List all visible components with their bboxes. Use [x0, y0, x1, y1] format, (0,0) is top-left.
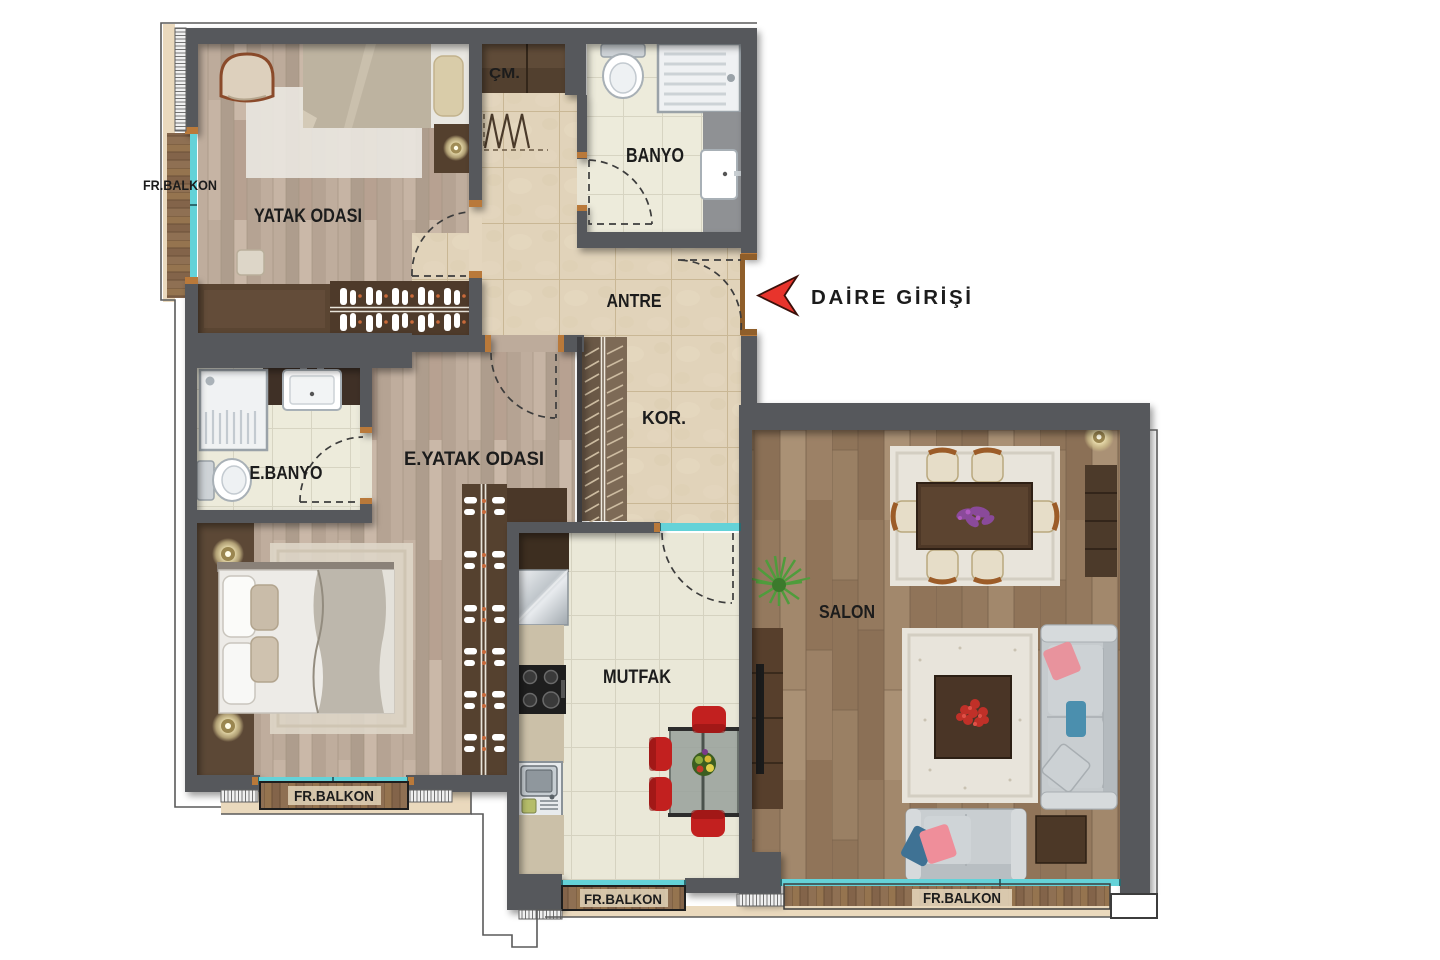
svg-text:FR.BALKON: FR.BALKON: [923, 890, 1001, 907]
svg-text:DAİRE GİRİŞİ: DAİRE GİRİŞİ: [811, 286, 973, 309]
svg-text:FR.BALKON: FR.BALKON: [294, 788, 374, 805]
svg-text:E.BANYO: E.BANYO: [250, 463, 323, 483]
svg-text:SALON: SALON: [819, 602, 875, 622]
svg-text:MUTFAK: MUTFAK: [603, 667, 671, 688]
svg-text:ANTRE: ANTRE: [607, 291, 662, 311]
svg-text:BANYO: BANYO: [626, 145, 684, 167]
svg-text:YATAK ODASI: YATAK ODASI: [254, 206, 362, 227]
svg-text:ÇM.: ÇM.: [489, 65, 520, 82]
svg-text:KOR.: KOR.: [642, 408, 686, 428]
svg-text:FR.BALKON: FR.BALKON: [143, 177, 217, 193]
svg-text:FR.BALKON: FR.BALKON: [584, 891, 662, 907]
svg-text:E.YATAK ODASI: E.YATAK ODASI: [404, 449, 544, 470]
